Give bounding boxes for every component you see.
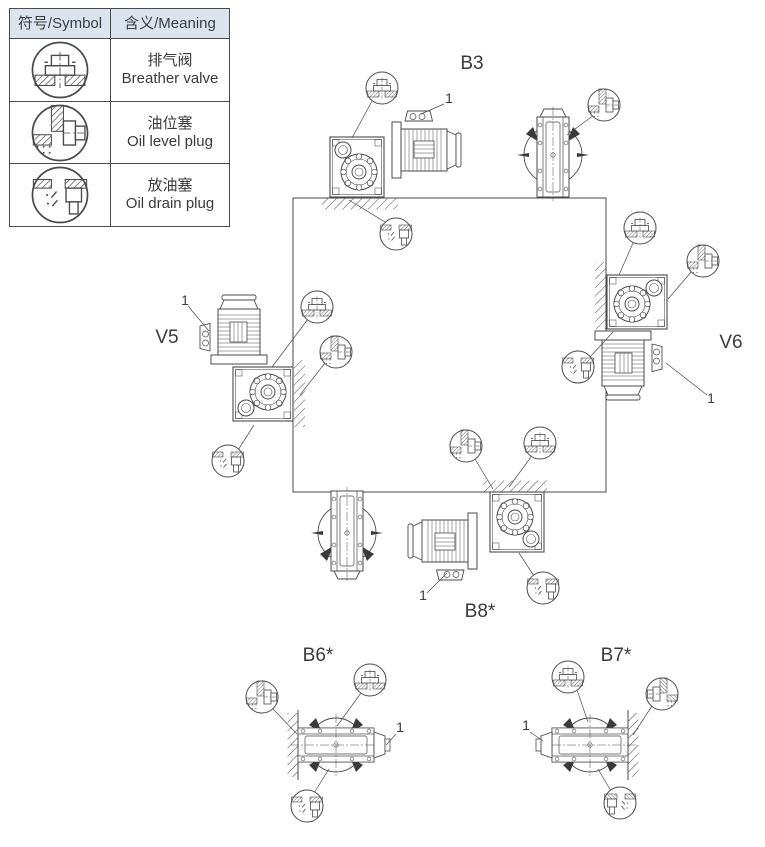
legend-header-meaning: 含义/Meaning xyxy=(110,9,229,38)
oil-level-plug-symbol xyxy=(450,430,482,462)
wall-hatching xyxy=(595,262,606,329)
breather-valve-symbol xyxy=(624,212,656,244)
floor-hatching xyxy=(322,199,398,210)
legend-drain-zh: 放油塞 xyxy=(147,177,192,195)
motor-callout-b3: 1 xyxy=(445,90,453,106)
position-label-v6: V6 xyxy=(719,332,742,353)
legend-level-zh: 油位塞 xyxy=(147,115,192,133)
oil-drain-plug-symbol-cell xyxy=(10,163,110,226)
legend-level-en: Oil level plug xyxy=(127,133,213,151)
breather-valve-icon xyxy=(12,40,108,100)
oil-level-plug-symbol xyxy=(588,89,620,121)
oil-drain-plug-symbol xyxy=(380,218,412,250)
wall-hatching xyxy=(294,360,305,427)
gearbox-side-view xyxy=(311,487,383,581)
gearbox-side-view xyxy=(290,714,382,776)
motor-callout-v6: 1 xyxy=(707,390,715,406)
breather-valve-symbol xyxy=(366,72,398,104)
oil-drain-plug-symbol xyxy=(604,787,636,819)
oil-level-plug-symbol xyxy=(246,681,278,713)
worm-gearbox-front-view xyxy=(607,275,667,329)
motor-side-view xyxy=(200,295,267,364)
legend-breather-en: Breather valve xyxy=(122,70,219,88)
oil-level-plug-symbol xyxy=(646,678,678,710)
breather-valve-symbol-cell xyxy=(10,38,110,101)
input-shaft-cap xyxy=(374,732,385,758)
oil-level-plug-meaning-cell: 油位塞 Oil level plug xyxy=(110,101,229,163)
oil-level-plug-icon xyxy=(12,103,108,163)
position-v6-assembly: V6 1 xyxy=(562,212,743,406)
oil-drain-plug-icon xyxy=(12,165,108,225)
symbol-legend-table: 符号/Symbol 含义/Meaning 排气阀 Breather valve … xyxy=(9,8,230,227)
breather-valve-symbol xyxy=(552,661,584,693)
position-label-b3: B3 xyxy=(460,53,483,74)
oil-level-plug-symbol xyxy=(320,336,352,368)
oil-level-plug-symbol xyxy=(687,245,719,277)
position-label-b6: B6* xyxy=(303,645,334,666)
oil-level-plug-symbol-cell xyxy=(10,101,110,163)
input-shaft-cap xyxy=(541,732,552,758)
motor-callout-b7: 1 xyxy=(522,717,530,733)
position-b6-assembly: B6* 1 xyxy=(246,645,404,822)
oil-drain-plug-symbol xyxy=(291,790,323,822)
oil-drain-plug-symbol xyxy=(212,445,244,477)
motor-side-view xyxy=(392,111,461,178)
input-shaft-end xyxy=(385,739,390,751)
input-shaft-end xyxy=(536,739,541,751)
breather-valve-meaning-cell: 排气阀 Breather valve xyxy=(110,38,229,101)
ceiling-hatching xyxy=(483,481,547,492)
position-v5-assembly: V5 1 xyxy=(155,291,352,477)
legend-drain-en: Oil drain plug xyxy=(126,195,214,213)
position-label-b8: B8* xyxy=(465,601,496,622)
breather-valve-symbol xyxy=(524,427,556,459)
breather-valve-symbol xyxy=(301,291,333,323)
worm-gearbox-front-view xyxy=(233,367,293,421)
breather-valve-symbol xyxy=(354,664,386,696)
mounting-positions-page: { "legend": { "header_symbol": "符号/Symbo… xyxy=(0,0,765,847)
position-b3-assembly: B3 1 xyxy=(322,53,620,250)
motor-side-view xyxy=(408,513,477,580)
legend-header-symbol: 符号/Symbol xyxy=(10,9,110,38)
motor-callout-b8: 1 xyxy=(419,587,427,603)
oil-drain-plug-symbol xyxy=(562,351,594,383)
oil-drain-plug-meaning-cell: 放油塞 Oil drain plug xyxy=(110,163,229,226)
motor-callout-b6: 1 xyxy=(396,719,404,735)
position-b8-assembly: B8* 1 xyxy=(311,427,559,622)
oil-drain-plug-symbol xyxy=(527,572,559,604)
motor-callout-v5: 1 xyxy=(181,292,189,308)
worm-gearbox-front-view xyxy=(490,492,544,552)
position-label-v5: V5 xyxy=(155,327,178,348)
worm-gearbox-front-view xyxy=(330,137,384,197)
motor-side-view xyxy=(595,331,662,400)
position-b7-assembly: B7* 1 xyxy=(522,645,678,819)
position-label-b7: B7* xyxy=(601,645,632,666)
legend-breather-zh: 排气阀 xyxy=(147,52,192,70)
gearbox-side-view xyxy=(517,107,589,201)
gearbox-side-view xyxy=(544,714,636,776)
